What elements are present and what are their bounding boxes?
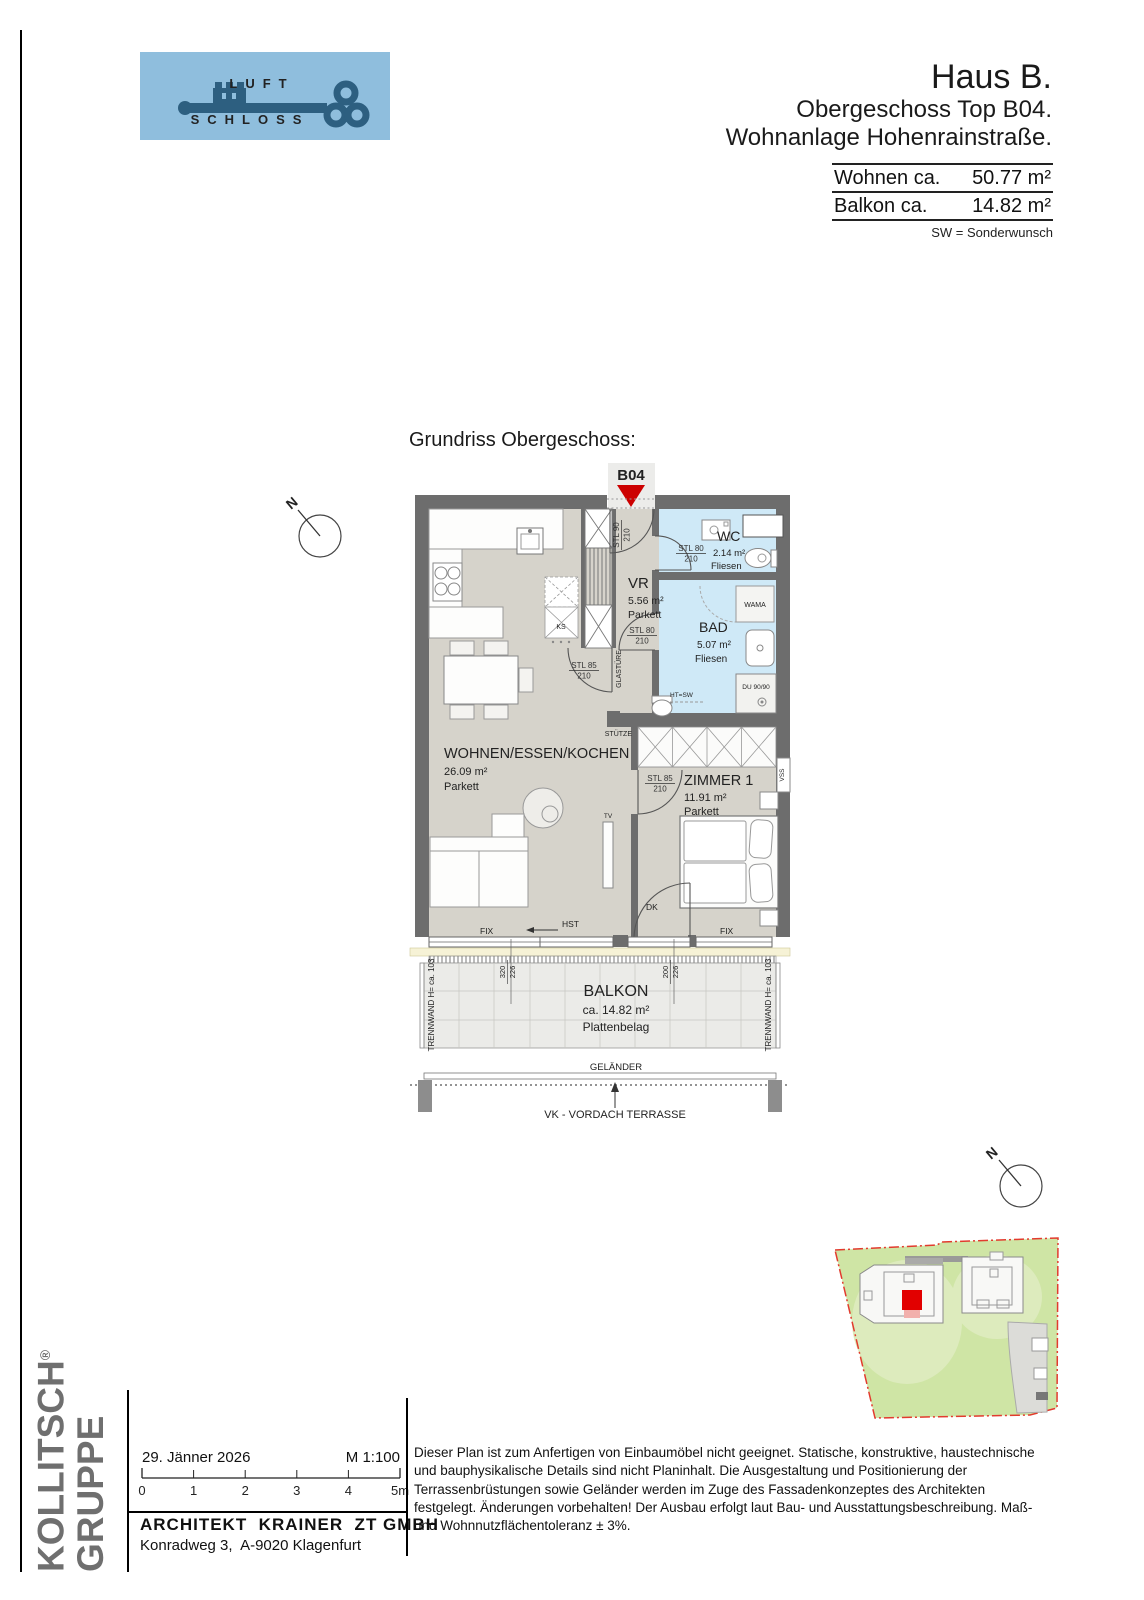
vordach-arrow-icon (611, 1082, 619, 1092)
site-building-right (962, 1252, 1023, 1313)
svg-text:GLASTÜRE: GLASTÜRE (615, 650, 623, 688)
vr-area: 5.56 m² (628, 595, 664, 607)
sw-note: SW = Sonderwunsch (832, 221, 1053, 240)
svg-text:226: 226 (671, 966, 680, 979)
architect-name: ARCHITEKT KRAINER ZT GMBH (140, 1515, 439, 1535)
window-sill (410, 948, 790, 956)
partition-left (420, 963, 424, 1048)
svg-text:TRENNWAND H= ca. 103: TRENNWAND H= ca. 103 (427, 958, 436, 1051)
svg-text:TRENNWAND H= ca. 103: TRENNWAND H= ca. 103 (764, 958, 773, 1051)
scale-tick-2: 2 (242, 1483, 249, 1498)
title-block: Haus B. Obergeschoss Top B04. Wohnanlage… (726, 58, 1052, 152)
svg-text:200: 200 (661, 966, 670, 979)
svg-text:STL 85: STL 85 (647, 774, 673, 783)
scale-tick-1: 1 (190, 1483, 197, 1498)
toilet (652, 700, 672, 716)
zimmer1-floor: Parkett (684, 806, 719, 818)
vordach-label: VK - VORDACH TERRASSE (544, 1109, 686, 1121)
shower (736, 674, 776, 713)
svg-text:210: 210 (577, 672, 591, 681)
page-border-left (20, 30, 22, 1572)
railing (424, 1073, 776, 1079)
svg-text:STL 80: STL 80 (678, 544, 704, 553)
north-label: N (283, 494, 301, 513)
registered-mark: ® (37, 1350, 53, 1360)
wc-floor: Fliesen (711, 561, 742, 572)
scale-tick-3: 3 (293, 1483, 300, 1498)
trennwand-label-left: TRENNWAND H= ca. 103 (427, 958, 436, 1051)
floor-plan: B04 (400, 456, 800, 1126)
site-building-left (860, 1265, 943, 1323)
htsw-label: HT=SW (670, 692, 694, 699)
plan-document-page: LUFT SCHLOSS Haus B. Obergeschoss Top B0… (0, 0, 1144, 1600)
table-row: Balkon ca. 14.82 m² (832, 193, 1053, 221)
logo-text-schloss: SCHLOSS (191, 112, 310, 127)
washbasin (746, 630, 774, 666)
wama-label: WAMA (744, 602, 766, 609)
brand-line-2: GRUPPE (71, 1390, 111, 1572)
logo-text-luft: LUFT (229, 76, 294, 91)
fix-label-left: FIX (480, 926, 494, 936)
svg-text:210: 210 (623, 528, 632, 542)
area-table: Wohnen ca. 50.77 m² Balkon ca. 14.82 m² … (832, 163, 1053, 240)
balkon-floor: Plattenbelag (583, 1020, 650, 1034)
footer-rule (127, 1511, 408, 1513)
luftschloss-logo: LUFT SCHLOSS (140, 52, 390, 140)
zimmer1-name: ZIMMER 1 (684, 773, 753, 789)
site-plan: N (812, 1122, 1132, 1432)
zimmer1-area: 11.91 m² (684, 792, 727, 804)
trennwand-label-right: TRENNWAND H= ca. 103 (764, 958, 773, 1051)
svg-text:210: 210 (653, 785, 667, 794)
north-compass-site: N (983, 1144, 1042, 1207)
unit-marker-b04: B04 (608, 463, 655, 509)
wardrobe (638, 727, 776, 767)
highlighted-unit (902, 1290, 922, 1310)
dk-label: DK (646, 902, 658, 912)
fix-label-right: FIX (720, 926, 734, 936)
vss-label: VSS (779, 768, 786, 782)
wc-niche (743, 515, 783, 537)
vr-name: VR (628, 575, 649, 592)
partition-right (776, 963, 780, 1048)
brand-line-1: KOLLITSCH (30, 1360, 71, 1572)
tv-label: TV (604, 813, 613, 820)
armchair (523, 788, 563, 828)
svg-text:210: 210 (684, 555, 698, 564)
kollitsch-gruppe-logo: KOLLITSCH® GRUPPE (25, 1390, 105, 1572)
gelaender-label: GELÄNDER (590, 1062, 642, 1073)
north-compass: N (278, 488, 358, 568)
page-subtitle-2: Wohnanlage Hohenrainstraße. (726, 124, 1052, 152)
wc-name: WC (717, 528, 740, 544)
bad-floor: Fliesen (695, 654, 727, 665)
tv-board (603, 822, 613, 888)
balkon-area: ca. 14.82 m² (583, 1003, 650, 1017)
scale-tick-0: 0 (138, 1483, 145, 1498)
page-title: Haus B. (726, 58, 1052, 96)
plan-heading: Grundriss Obergeschoss: (409, 429, 636, 452)
svg-text:STL 85: STL 85 (571, 661, 597, 670)
svg-text:STL 80: STL 80 (629, 626, 655, 635)
wohnen-floor: Parkett (444, 781, 479, 793)
dining-table (444, 656, 518, 704)
key-castle-icon: LUFT SCHLOSS (140, 52, 390, 140)
footer-divider-2 (406, 1398, 408, 1556)
svg-text:320: 320 (498, 966, 507, 979)
glastuere-label: GLASTÜRE (615, 650, 623, 688)
svg-text:STL 90: STL 90 (612, 522, 621, 548)
stair-shaft (585, 509, 612, 648)
stuetze-column (607, 711, 620, 727)
disclaimer-text: Dieser Plan ist zum Anfertigen von Einba… (414, 1444, 1038, 1536)
area-value-wohnen: 50.77 m² (972, 167, 1051, 190)
bad-name: BAD (699, 619, 728, 635)
area-label-wohnen: Wohnen ca. (834, 167, 940, 190)
nightstand (760, 910, 778, 926)
north-label: N (983, 1144, 1001, 1163)
page-subtitle-1: Obergeschoss Top B04. (726, 96, 1052, 124)
ks-label: KS (556, 624, 566, 631)
unit-marker-label: B04 (617, 467, 645, 484)
svg-text:226: 226 (508, 966, 517, 979)
scale-bar: 0 1 2 3 4 5m (138, 1464, 408, 1498)
vr-floor: Parkett (628, 609, 661, 621)
hst-label: HST (562, 919, 579, 929)
area-label-balkon: Balkon ca. (834, 195, 927, 218)
svg-text:210: 210 (635, 637, 649, 646)
table-row: Wohnen ca. 50.77 m² (832, 165, 1053, 193)
nightstand (760, 792, 778, 809)
scale-tick-4: 4 (345, 1483, 352, 1498)
footer-divider-1 (127, 1390, 129, 1572)
wohnen-area: 26.09 m² (444, 766, 488, 778)
svg-text:VSS: VSS (779, 768, 786, 782)
balkon-name: BALKON (584, 983, 649, 1000)
architect-address: Konradweg 3, A-9020 Klagenfurt (140, 1537, 361, 1554)
wc-area: 2.14 m² (713, 548, 745, 559)
stuetze-label: STÜTZE (605, 730, 633, 738)
wohnen-name: WOHNEN/ESSEN/KOCHEN (444, 746, 629, 762)
bad-area: 5.07 m² (697, 640, 732, 651)
area-value-balkon: 14.82 m² (972, 195, 1051, 218)
du-label: DU 90/90 (742, 684, 770, 691)
